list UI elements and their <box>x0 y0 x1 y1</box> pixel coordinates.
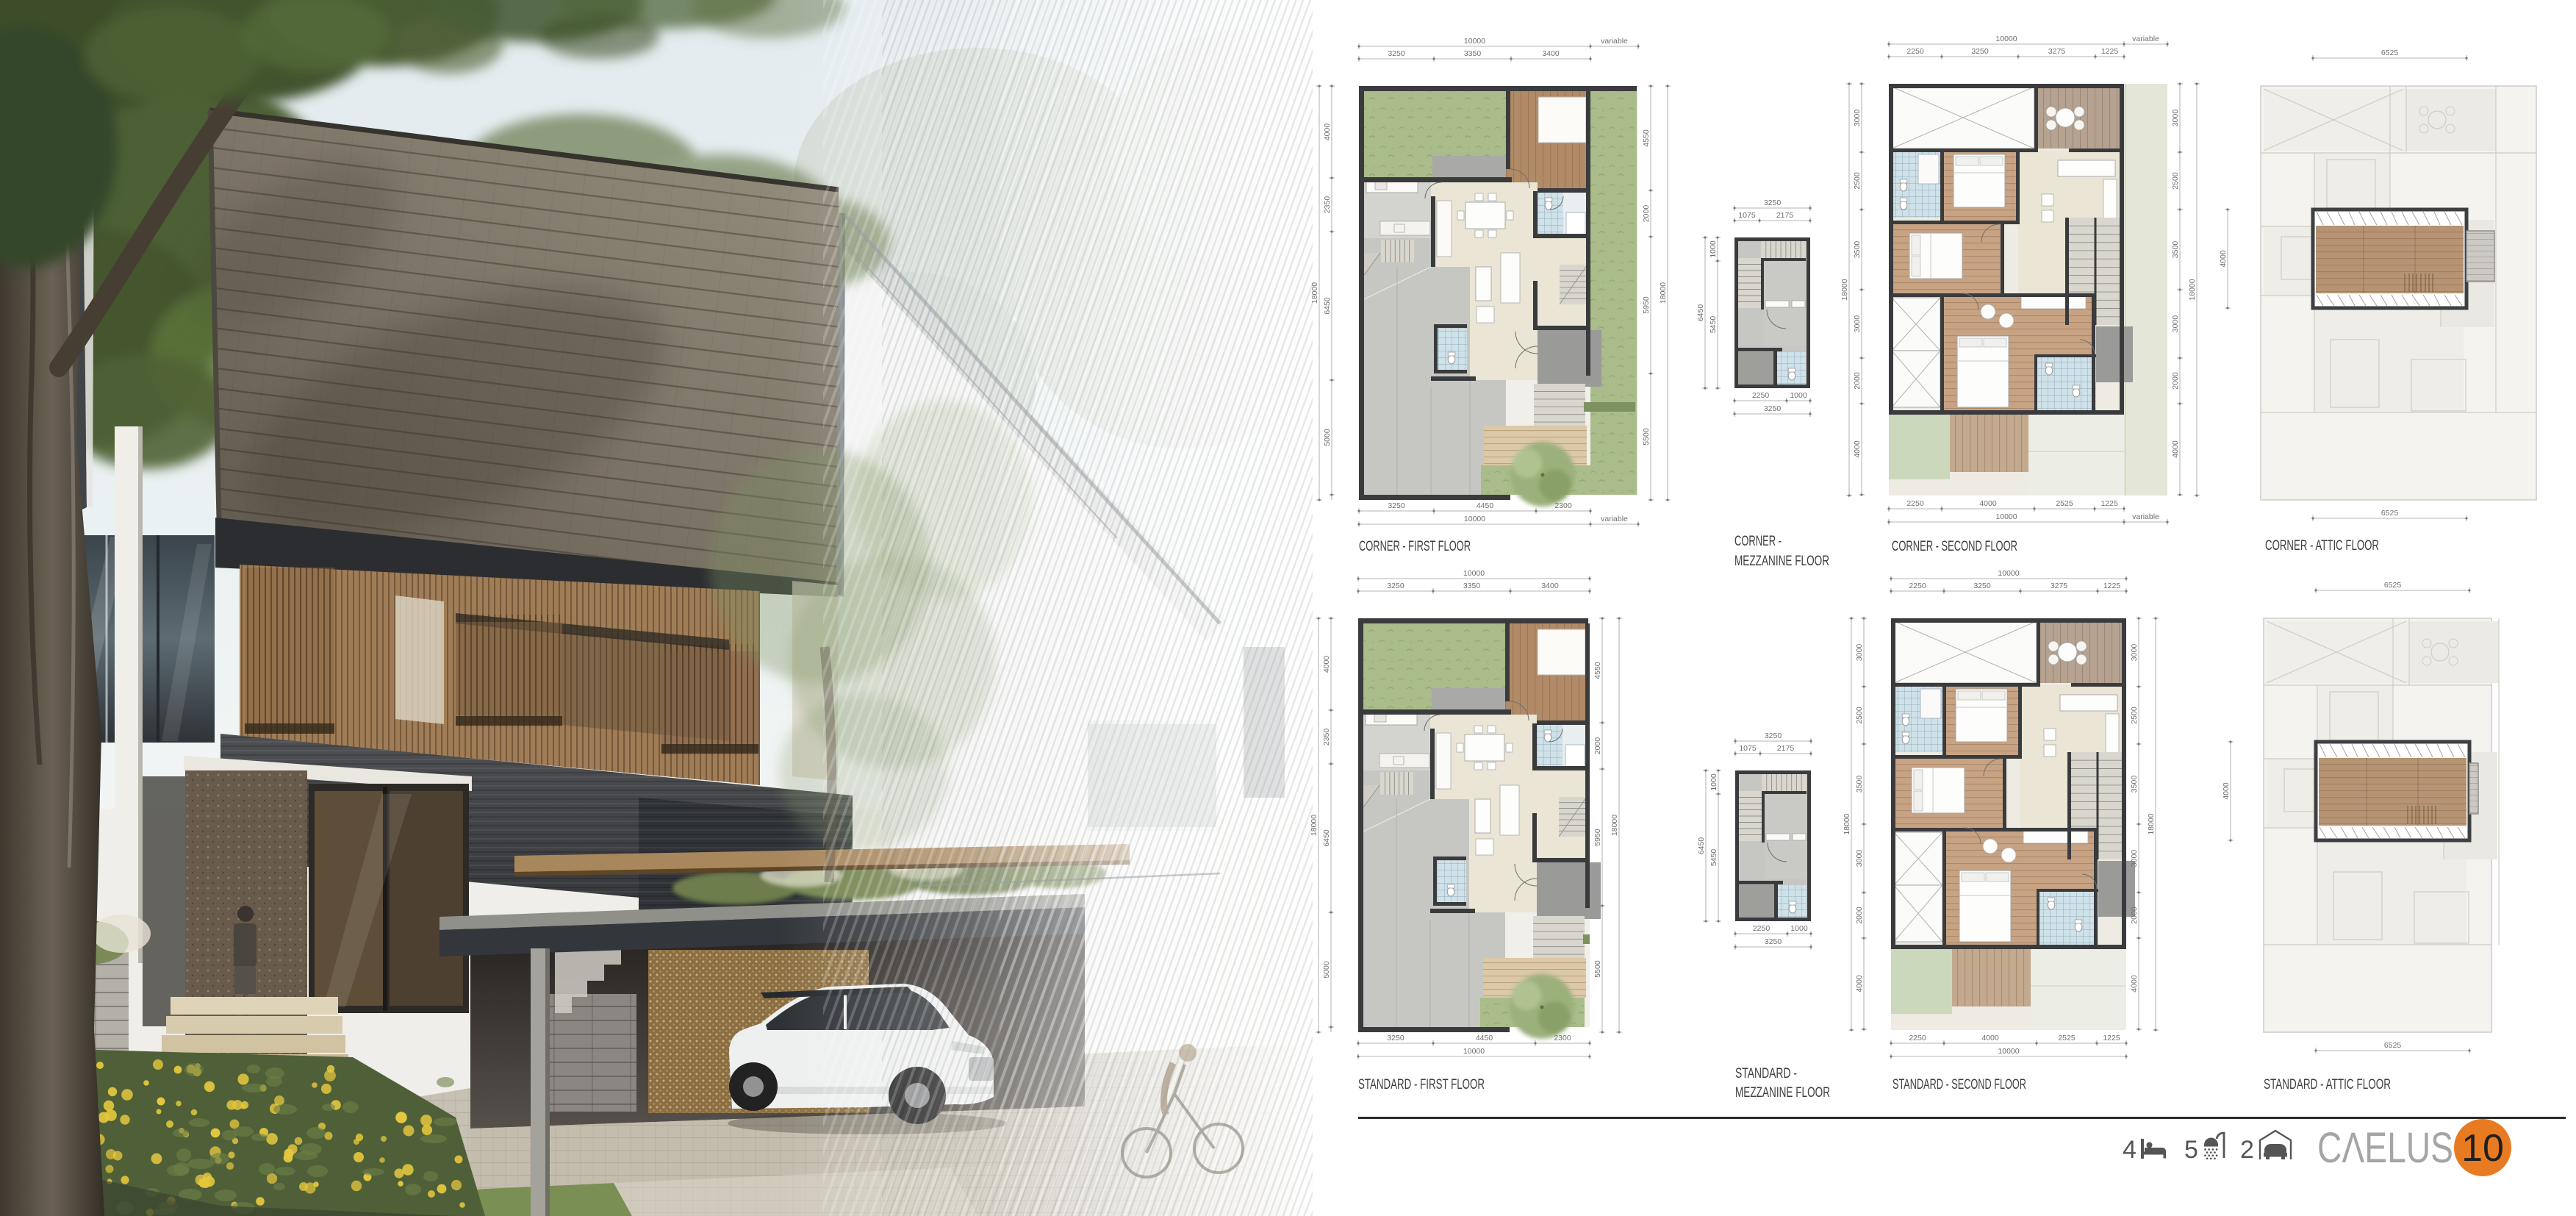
svg-text:10000: 10000 <box>1464 37 1485 46</box>
svg-text:2300: 2300 <box>1554 501 1572 510</box>
svg-text:2500: 2500 <box>1853 172 1862 190</box>
svg-text:18000: 18000 <box>2147 813 2156 834</box>
svg-text:2500: 2500 <box>1855 707 1864 724</box>
svg-text:4000: 4000 <box>1322 656 1331 673</box>
svg-text:2250: 2250 <box>1753 924 1770 933</box>
svg-text:3400: 3400 <box>1542 49 1560 58</box>
svg-text:10000: 10000 <box>1998 569 2019 578</box>
svg-text:CΛELUS: CΛELUS <box>2317 1124 2453 1172</box>
svg-text:3000: 3000 <box>1855 644 1864 662</box>
svg-text:5000: 5000 <box>1322 961 1331 979</box>
svg-text:variable: variable <box>1601 515 1628 523</box>
svg-text:10000: 10000 <box>1995 35 2017 43</box>
svg-text:3250: 3250 <box>1388 49 1405 58</box>
svg-text:18000: 18000 <box>2188 279 2197 300</box>
svg-text:1075: 1075 <box>1739 744 1757 753</box>
svg-text:1000: 1000 <box>1790 924 1808 933</box>
svg-text:10000: 10000 <box>1464 515 1485 523</box>
svg-text:2250: 2250 <box>1909 1034 1926 1042</box>
svg-text:3250: 3250 <box>1387 1034 1404 1042</box>
svg-text:3250: 3250 <box>1764 404 1782 413</box>
svg-text:6450: 6450 <box>1697 837 1706 855</box>
svg-text:3500: 3500 <box>1855 776 1864 793</box>
svg-text:4000: 4000 <box>1323 124 1332 141</box>
svg-text:4550: 4550 <box>1642 129 1651 147</box>
svg-text:4450: 4450 <box>1477 501 1494 510</box>
svg-text:10000: 10000 <box>1998 1047 2019 1056</box>
svg-text:CORNER - ATTIC FLOOR: CORNER - ATTIC FLOOR <box>2265 538 2379 554</box>
svg-text:2525: 2525 <box>2058 1034 2075 1042</box>
svg-text:3275: 3275 <box>2051 582 2068 590</box>
svg-text:3250: 3250 <box>1765 732 1782 740</box>
svg-text:1000: 1000 <box>1709 240 1718 258</box>
svg-text:2000: 2000 <box>1853 372 1862 390</box>
svg-text:18000: 18000 <box>1840 279 1849 300</box>
svg-text:5950: 5950 <box>1642 296 1651 314</box>
svg-text:3000: 3000 <box>2171 110 2180 127</box>
svg-text:18000: 18000 <box>1659 282 1668 304</box>
svg-text:3400: 3400 <box>1541 582 1559 590</box>
svg-text:STANDARD - ATTIC FLOOR: STANDARD - ATTIC FLOOR <box>2264 1077 2391 1092</box>
svg-text:3250: 3250 <box>1764 199 1782 207</box>
svg-text:3000: 3000 <box>1853 110 1862 127</box>
svg-text:variable: variable <box>2132 512 2159 521</box>
svg-text:3000: 3000 <box>1853 315 1862 333</box>
svg-text:3500: 3500 <box>1853 241 1862 259</box>
svg-text:MEZZANINE FLOOR: MEZZANINE FLOOR <box>1735 1085 1830 1101</box>
svg-text:3275: 3275 <box>2048 47 2066 56</box>
svg-text:4000: 4000 <box>1853 440 1862 458</box>
svg-text:4000: 4000 <box>2222 782 2231 800</box>
svg-text:1225: 1225 <box>2101 47 2119 56</box>
svg-text:5950: 5950 <box>1593 829 1602 846</box>
svg-text:6450: 6450 <box>1323 297 1332 315</box>
svg-text:5500: 5500 <box>1593 960 1602 978</box>
svg-text:1000: 1000 <box>1709 773 1718 791</box>
svg-text:6450: 6450 <box>1696 304 1705 322</box>
svg-text:3250: 3250 <box>1971 47 1989 56</box>
svg-text:2: 2 <box>2240 1136 2254 1164</box>
svg-text:2000: 2000 <box>2171 372 2180 390</box>
svg-text:6525: 6525 <box>2384 1041 2402 1050</box>
svg-text:2525: 2525 <box>2056 499 2073 508</box>
svg-text:3500: 3500 <box>2171 241 2180 259</box>
svg-text:6525: 6525 <box>2384 581 2402 590</box>
svg-text:10000: 10000 <box>1463 1047 1485 1056</box>
svg-text:2300: 2300 <box>1554 1034 1571 1042</box>
svg-text:6525: 6525 <box>2381 509 2399 518</box>
svg-text:5000: 5000 <box>1323 429 1332 446</box>
svg-text:18000: 18000 <box>1610 815 1619 836</box>
svg-text:2000: 2000 <box>2130 906 2139 924</box>
svg-text:variable: variable <box>1601 37 1628 46</box>
svg-text:6525: 6525 <box>2381 49 2399 57</box>
svg-text:4000: 4000 <box>1855 975 1864 993</box>
svg-text:2250: 2250 <box>1906 47 1924 56</box>
svg-text:4000: 4000 <box>2171 440 2180 458</box>
svg-text:4000: 4000 <box>1979 499 1997 508</box>
svg-text:3250: 3250 <box>1388 501 1405 510</box>
svg-text:18000: 18000 <box>1843 813 1851 834</box>
svg-text:3250: 3250 <box>1765 937 1782 946</box>
svg-text:STANDARD -: STANDARD - <box>1735 1066 1797 1081</box>
svg-text:3250: 3250 <box>1387 582 1404 590</box>
svg-text:3000: 3000 <box>2171 315 2180 333</box>
svg-text:2175: 2175 <box>1777 744 1795 753</box>
svg-text:18000: 18000 <box>1310 815 1319 836</box>
svg-text:18000: 18000 <box>1310 282 1319 304</box>
svg-text:2250: 2250 <box>1906 499 1924 508</box>
svg-text:variable: variable <box>2132 35 2159 43</box>
svg-text:2250: 2250 <box>1909 582 1926 590</box>
svg-text:2350: 2350 <box>1322 729 1331 746</box>
svg-text:STANDARD - FIRST FLOOR: STANDARD - FIRST FLOOR <box>1358 1077 1485 1092</box>
svg-text:2000: 2000 <box>1642 205 1651 223</box>
svg-text:10: 10 <box>2461 1127 2504 1170</box>
svg-text:1000: 1000 <box>1790 391 1807 400</box>
svg-text:5450: 5450 <box>1709 849 1718 867</box>
svg-text:4: 4 <box>2123 1136 2136 1164</box>
svg-text:1225: 1225 <box>2100 499 2118 508</box>
svg-text:CORNER -: CORNER - <box>1734 534 1782 549</box>
svg-text:3000: 3000 <box>2130 850 2139 868</box>
svg-text:CORNER - FIRST FLOOR: CORNER - FIRST FLOOR <box>1359 539 1471 554</box>
svg-text:MEZZANINE FLOOR: MEZZANINE FLOOR <box>1734 554 1829 569</box>
svg-text:5: 5 <box>2184 1136 2198 1164</box>
svg-text:4000: 4000 <box>1981 1034 1999 1042</box>
svg-text:10000: 10000 <box>1463 569 1485 578</box>
svg-text:3000: 3000 <box>2130 644 2139 662</box>
svg-text:2175: 2175 <box>1776 211 1794 220</box>
svg-text:3350: 3350 <box>1463 582 1481 590</box>
svg-text:CORNER - SECOND FLOOR: CORNER - SECOND FLOOR <box>1892 539 2017 554</box>
svg-text:3500: 3500 <box>2130 776 2139 793</box>
svg-text:4550: 4550 <box>1593 662 1602 679</box>
svg-text:2350: 2350 <box>1323 196 1332 214</box>
svg-text:3000: 3000 <box>1855 850 1864 868</box>
svg-text:4000: 4000 <box>2219 250 2228 268</box>
svg-text:1225: 1225 <box>2103 1034 2120 1042</box>
svg-text:6450: 6450 <box>1322 829 1331 847</box>
svg-text:2500: 2500 <box>2130 707 2139 724</box>
svg-text:5450: 5450 <box>1709 316 1718 334</box>
svg-text:3350: 3350 <box>1464 49 1482 58</box>
svg-text:2000: 2000 <box>1855 906 1864 924</box>
svg-text:2250: 2250 <box>1752 391 1770 400</box>
svg-text:4000: 4000 <box>2130 975 2139 993</box>
svg-text:1225: 1225 <box>2103 582 2121 590</box>
svg-text:5500: 5500 <box>1642 428 1651 446</box>
svg-text:10000: 10000 <box>1995 512 2017 521</box>
svg-text:1075: 1075 <box>1738 211 1756 220</box>
svg-text:2500: 2500 <box>2171 172 2180 190</box>
svg-text:2000: 2000 <box>1593 737 1602 755</box>
svg-text:STANDARD - SECOND FLOOR: STANDARD - SECOND FLOOR <box>1892 1077 2026 1092</box>
svg-text:4450: 4450 <box>1476 1034 1493 1042</box>
svg-text:3250: 3250 <box>1973 582 1991 590</box>
